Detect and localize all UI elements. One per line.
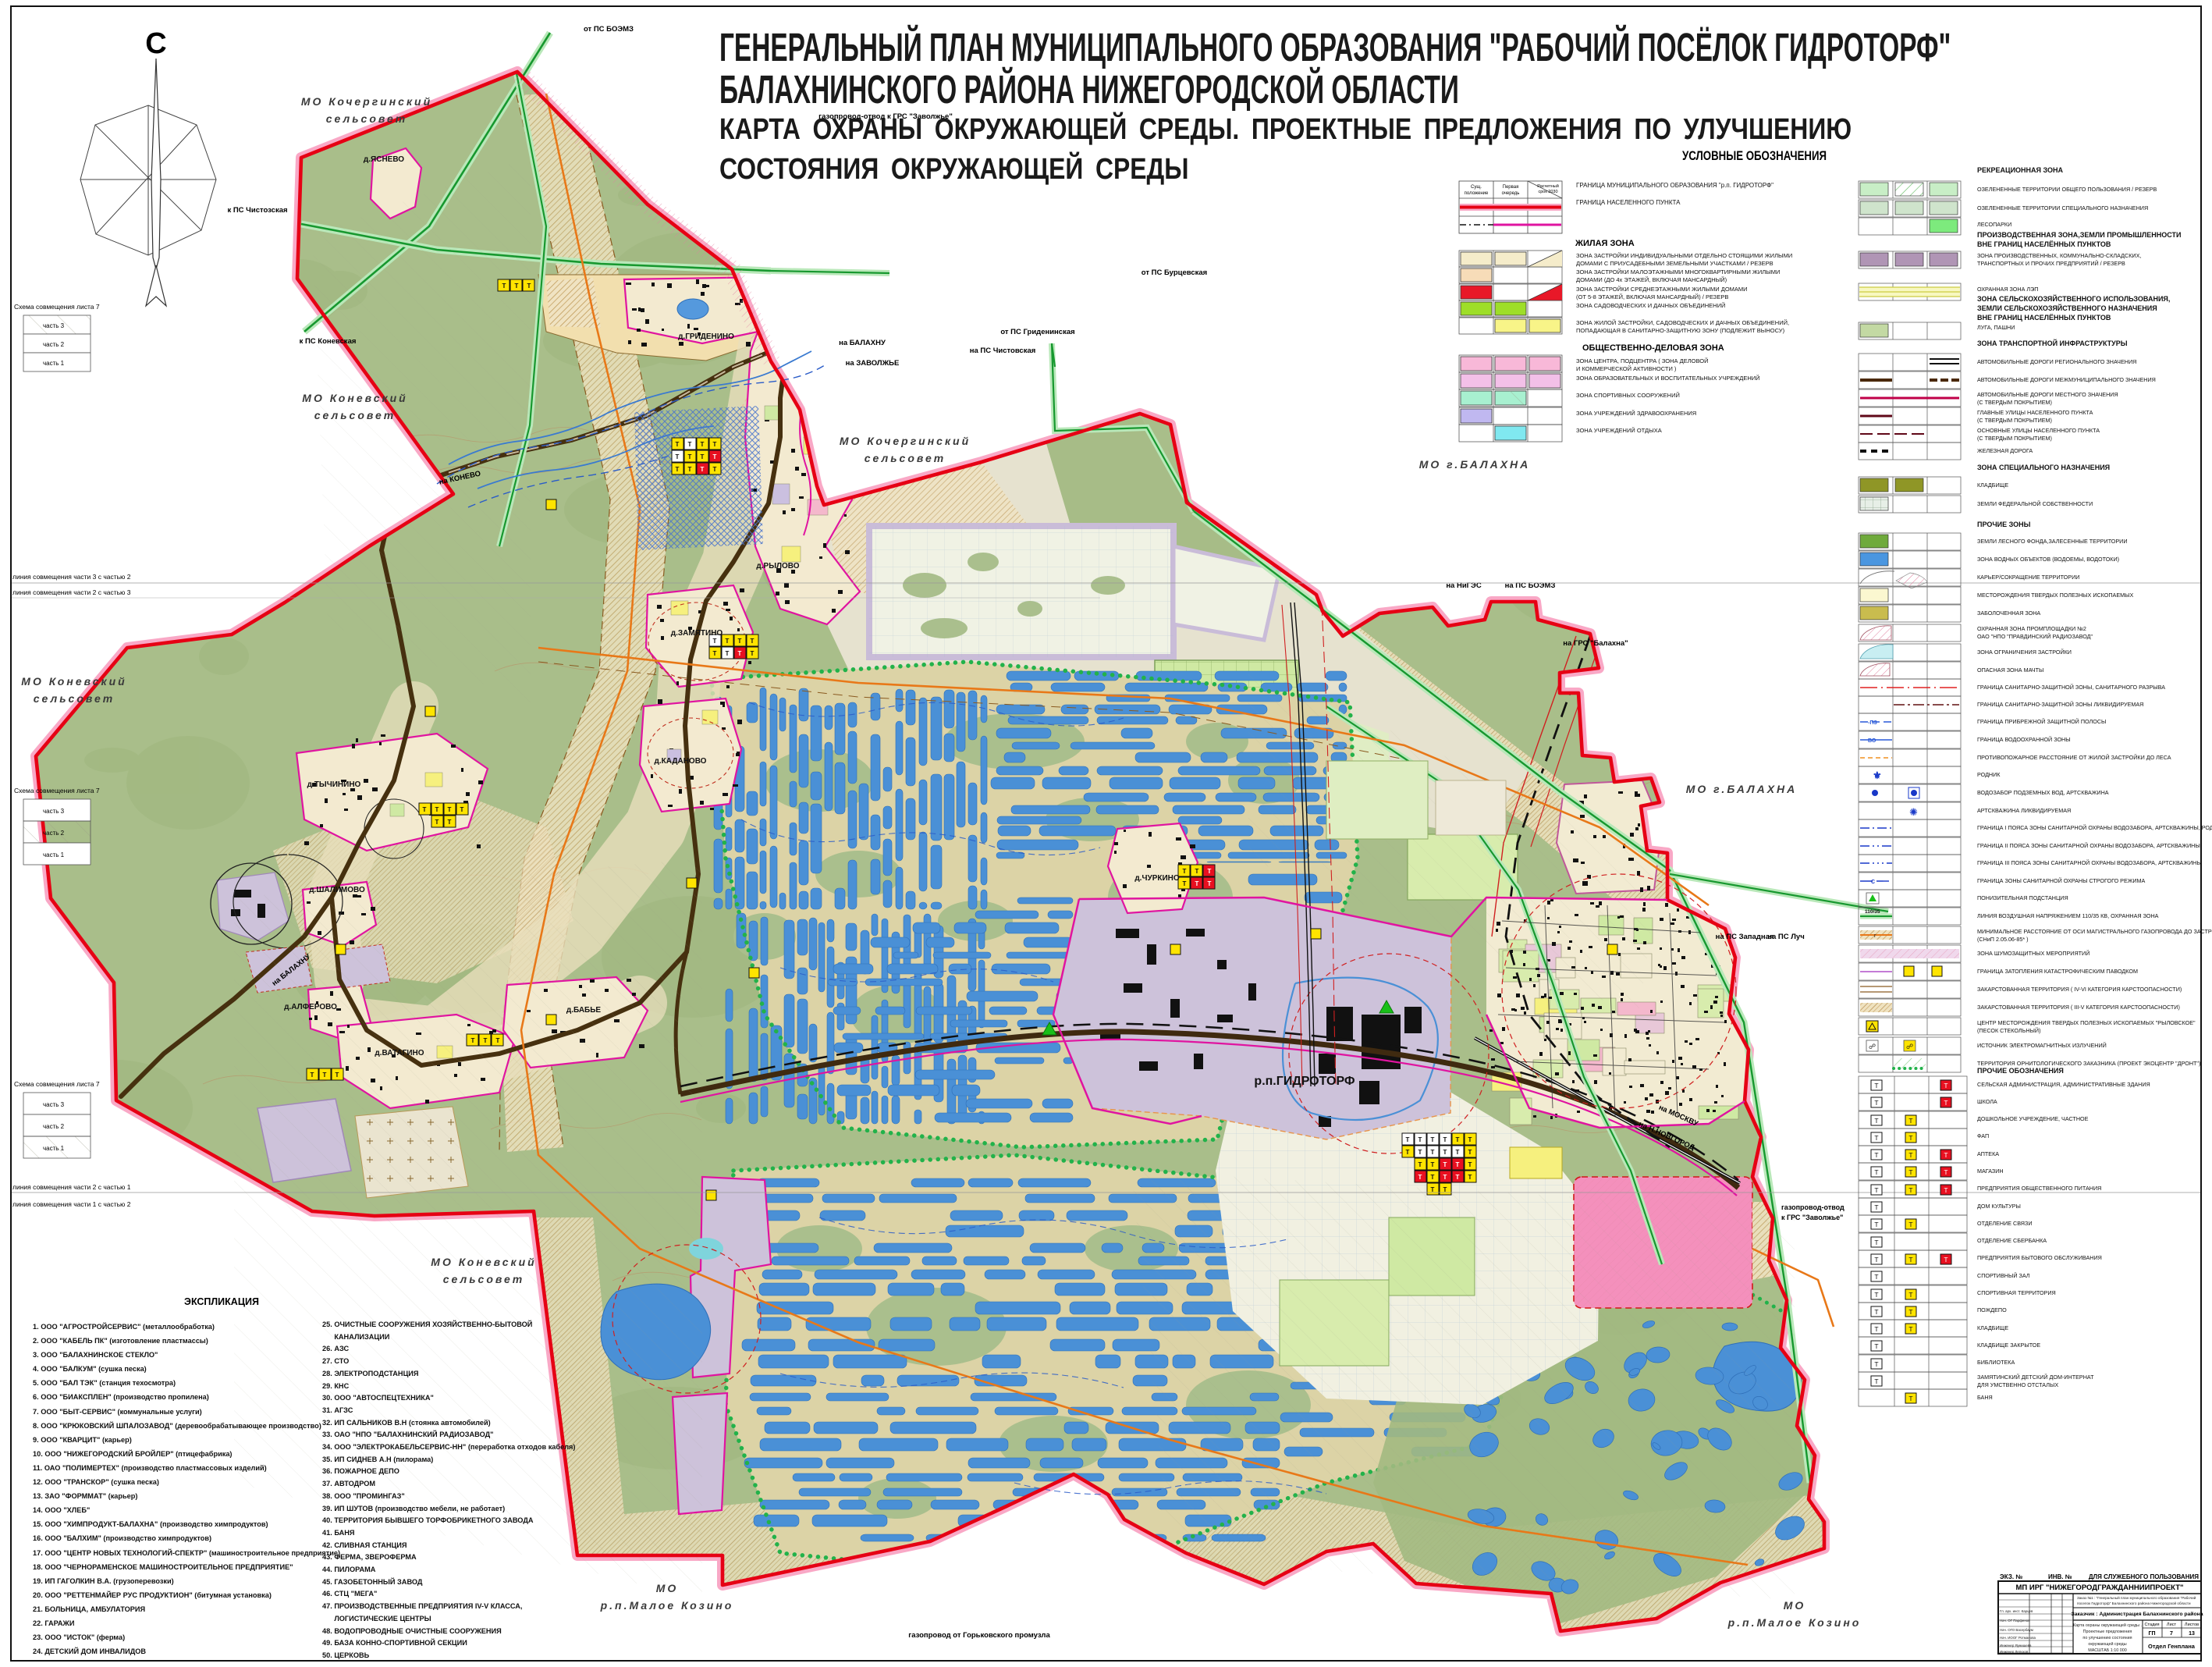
svg-text:Схема совмещения листа 7: Схема совмещения листа 7 [14, 787, 100, 794]
svg-text:T: T [701, 453, 705, 460]
svg-text:T: T [738, 638, 742, 645]
svg-text:ВОДОЗАБОР ПОДЗЕМНЫХ ВОД, АРТСК: ВОДОЗАБОР ПОДЗЕМНЫХ ВОД, АРТСКВАЖИНА [1977, 789, 2109, 796]
svg-text:T: T [676, 441, 680, 448]
svg-text:ДОМАМИ (ДО 4х ЭТАЖЕЙ, ВКЛЮЧАЯ: ДОМАМИ (ДО 4х ЭТАЖЕЙ, ВКЛЮЧАЯ МАНСАРДНЫЙ… [1576, 276, 1727, 283]
svg-text:РОДНИК: РОДНИК [1977, 771, 2001, 778]
svg-text:ЖИЛАЯ ЗОНА: ЖИЛАЯ ЗОНА [1575, 239, 1635, 248]
svg-text:T: T [1443, 1161, 1447, 1168]
svg-text:49. БАЗА КОННО-СПОРТИВНОЙ СЕКЦ: 49. БАЗА КОННО-СПОРТИВНОЙ СЕКЦИИ [322, 1638, 467, 1647]
svg-text:T: T [1874, 1377, 1878, 1385]
svg-text:ПРОИЗВОДСТВЕННАЯ ЗОНА,ЗЕМЛИ ПР: ПРОИЗВОДСТВЕННАЯ ЗОНА,ЗЕМЛИ ПРОМЫШЛЕННОС… [1977, 231, 2181, 239]
svg-text:поселок Гидроторф" Балахнинско: поселок Гидроторф" Балахнинского района … [2077, 1601, 2191, 1605]
svg-text:ПОПАДАЮЩАЯ В САНИТАРНО-ЗАЩИТНУ: ПОПАДАЮЩАЯ В САНИТАРНО-ЗАЩИТНУЮ ЗОНУ (ПО… [1576, 327, 1785, 334]
svg-text:T: T [1874, 1221, 1878, 1228]
svg-text:T: T [1908, 1151, 1912, 1159]
svg-text:часть 3: часть 3 [43, 808, 65, 815]
svg-text:на ГРС "Балахна": на ГРС "Балахна" [1563, 639, 1628, 648]
svg-text:21. БОЛЬНИЦА, АМБУЛАТОРИЯ: 21. БОЛЬНИЦА, АМБУЛАТОРИЯ [33, 1605, 145, 1613]
svg-text:T: T [1874, 1256, 1878, 1264]
svg-text:T: T [751, 650, 754, 657]
svg-text:T: T [496, 1037, 500, 1044]
svg-text:32. ИП САЛЬНИКОВ В.Н (стоянка: 32. ИП САЛЬНИКОВ В.Н (стоянка автомобиле… [322, 1419, 491, 1427]
svg-text:С: С [145, 27, 166, 60]
svg-text:27. СТО: 27. СТО [322, 1357, 349, 1365]
svg-text:✺: ✺ [1909, 806, 1918, 818]
svg-text:г: г [1874, 933, 1876, 939]
svg-text:ГРАНИЦА МУНИЦИПАЛЬНОГО ОБРАЗОВ: ГРАНИЦА МУНИЦИПАЛЬНОГО ОБРАЗОВАНИЯ "р.п.… [1576, 182, 1774, 189]
svg-text:Заказ №1 : "Генеральный план м: Заказ №1 : "Генеральный план муниципальн… [2077, 1595, 2196, 1600]
svg-text:И КОММЕРЧЕСКОЙ АКТИВНОСТИ ): И КОММЕРЧЕСКОЙ АКТИВНОСТИ ) [1576, 365, 1677, 372]
svg-text:T: T [1874, 1203, 1878, 1211]
svg-text:д.ЯСНЕВО: д.ЯСНЕВО [364, 155, 404, 164]
svg-text:РЕКРЕАЦИОННАЯ ЗОНА: РЕКРЕАЦИОННАЯ ЗОНА [1977, 166, 2064, 174]
svg-text:T: T [1874, 1342, 1878, 1350]
svg-text:С: С [1871, 880, 1875, 885]
svg-text:T: T [471, 1037, 475, 1044]
svg-text:ПРОЧИЕ ЗОНЫ: ПРОЧИЕ ЗОНЫ [1977, 521, 2031, 528]
svg-text:часть 2: часть 2 [43, 341, 65, 348]
svg-text:T: T [688, 466, 692, 473]
svg-text:д.КАДАНОВО: д.КАДАНОВО [655, 757, 707, 766]
svg-text:3. ООО "БАЛАХНИНСКОЕ СТЕКЛО": 3. ООО "БАЛАХНИНСКОЕ СТЕКЛО" [33, 1351, 158, 1359]
svg-text:T: T [1418, 1149, 1422, 1156]
svg-text:T: T [1468, 1174, 1472, 1181]
svg-text:сельсовет: сельсовет [865, 452, 946, 464]
svg-text:T: T [751, 638, 754, 645]
svg-text:ЗОНА ЖИЛОЙ ЗАСТРОЙКИ, САДОВОДЧ: ЗОНА ЖИЛОЙ ЗАСТРОЙКИ, САДОВОДЧЕСКИХ И ДА… [1576, 319, 1789, 326]
svg-text:6. ООО "БИАКСПЛЕН" (производст: 6. ООО "БИАКСПЛЕН" (производство пропиле… [33, 1393, 209, 1401]
svg-text:ГП: ГП [2149, 1631, 2156, 1637]
svg-text:T: T [1944, 1151, 1947, 1159]
svg-text:КАНАЛИЗАЦИИ: КАНАЛИЗАЦИИ [322, 1333, 389, 1341]
svg-text:T: T [1456, 1161, 1460, 1168]
svg-text:18. ООО "ЧЕРНОРАМЕНСКОЕ МАШИНО: 18. ООО "ЧЕРНОРАМЕНСКОЕ МАШИНОСТРОИТЕЛЬН… [33, 1563, 293, 1571]
svg-text:сельсовет: сельсовет [314, 409, 396, 421]
svg-text:26. АЗС: 26. АЗС [322, 1345, 349, 1352]
svg-text:15. ООО "ХИМПРОДУКТ-БАЛАХНА" (: 15. ООО "ХИМПРОДУКТ-БАЛАХНА" (производст… [33, 1520, 268, 1528]
svg-text:T: T [1431, 1149, 1435, 1156]
svg-text:39. ИП ШУТОВ (производство меб: 39. ИП ШУТОВ (производство мебели, не ра… [322, 1505, 505, 1512]
svg-text:ДОМАМИ С ПРИУСАДЕБНЫМИ ЗЕМЕЛЬН: ДОМАМИ С ПРИУСАДЕБНЫМИ ЗЕМЕЛЬНЫМИ УЧАСТК… [1576, 260, 1774, 267]
svg-text:12. ООО "ТРАНСКОР" (сушка песк: 12. ООО "ТРАНСКОР" (сушка песка) [33, 1478, 159, 1486]
svg-text:T: T [726, 638, 730, 645]
svg-text:КЛАДБИЩЕ ЗАКРЫТОЕ: КЛАДБИЩЕ ЗАКРЫТОЕ [1977, 1342, 2040, 1349]
svg-text:д.БАБЬЕ: д.БАБЬЕ [566, 1006, 602, 1015]
svg-text:22. ГАРАЖИ: 22. ГАРАЖИ [33, 1619, 74, 1627]
svg-text:МО г.БАЛАХНА: МО г.БАЛАХНА [1686, 783, 1798, 795]
svg-text:д.ШАЛИМОВО: д.ШАЛИМОВО [309, 886, 365, 894]
svg-text:40. ТЕРРИТОРИЯ БЫВШЕГО ТОРФОБР: 40. ТЕРРИТОРИЯ БЫВШЕГО ТОРФОБРИКЕТНОГО З… [322, 1516, 534, 1524]
svg-text:T: T [435, 806, 439, 813]
svg-text:часть 1: часть 1 [43, 851, 65, 858]
svg-text:41. БАНЯ: 41. БАНЯ [322, 1529, 354, 1537]
svg-text:ЭКЗ. №: ЭКЗ. № [2000, 1573, 2022, 1580]
svg-text:T: T [1874, 1325, 1878, 1333]
svg-text:очередь: очередь [1502, 191, 1520, 196]
svg-text:T: T [1908, 1325, 1912, 1333]
svg-text:ГРАНИЦА ПРИБРЕЖНОЙ ЗАЩИТНОЙ ПО: ГРАНИЦА ПРИБРЕЖНОЙ ЗАЩИТНОЙ ПОЛОСЫ [1977, 718, 2106, 725]
svg-text:⚜: ⚜ [1873, 770, 1882, 781]
svg-text:на БАЛАХНУ: на БАЛАХНУ [839, 339, 886, 347]
svg-text:МИНИМАЛЬНОЕ РАССТОЯНИЕ ОТ ОСИ: МИНИМАЛЬНОЕ РАССТОЯНИЕ ОТ ОСИ МАГИСТРАЛЬ… [1977, 928, 2212, 935]
svg-text:УСЛОВНЫЕ ОБОЗНАЧЕНИЯ: УСЛОВНЫЕ ОБОЗНАЧЕНИЯ [1682, 149, 1827, 164]
svg-text:Лист: Лист [2167, 1623, 2177, 1627]
svg-text:Нач. ОГО Васербаум: Нач. ОГО Васербаум [2000, 1628, 2033, 1632]
svg-text:(С ТВЕРДЫМ ПОКРЫТИЕМ): (С ТВЕРДЫМ ПОКРЫТИЕМ) [1977, 435, 2052, 442]
svg-text:линия совмещения части 2 с ча: линия совмещения части 2 с частью 3 [12, 588, 131, 596]
svg-text:T: T [1468, 1149, 1472, 1156]
svg-text:ВО: ВО [1868, 738, 1876, 744]
svg-text:Нач. ИООГ Ротманова: Нач. ИООГ Ротманова [2000, 1636, 2036, 1640]
svg-text:(ОТ 5-8 ЭТАЖЕЙ, ВКЛЮЧАЯ МАНСАР: (ОТ 5-8 ЭТАЖЕЙ, ВКЛЮЧАЯ МАНСАРДНЫЙ) / РЕ… [1576, 293, 1728, 300]
svg-text:МО Кочергинский: МО Кочергинский [301, 95, 432, 108]
svg-text:ЗОНА ЗАСТРОЙКИ МАЛОЭТАЖНЫМИ М: ЗОНА ЗАСТРОЙКИ МАЛОЭТАЖНЫМИ МНОГОКВАРТИР… [1576, 268, 1780, 275]
svg-text:(С ТВЕРДЫМ ПОКРЫТИЕМ): (С ТВЕРДЫМ ПОКРЫТИЕМ) [1977, 399, 2052, 406]
svg-text:17. ООО "ЦЕНТР НОВЫХ ТЕХНОЛОГИ: 17. ООО "ЦЕНТР НОВЫХ ТЕХНОЛОГИЙ-СПЕКТР" … [33, 1548, 340, 1557]
svg-text:сельсовет: сельсовет [326, 112, 407, 125]
svg-text:T: T [1195, 880, 1199, 887]
svg-text:МО Кочергинский: МО Кочергинский [840, 435, 971, 447]
svg-text:МО: МО [1784, 1599, 1806, 1612]
svg-text:Схема совмещения листа 7: Схема совмещения листа 7 [14, 1080, 100, 1088]
svg-text:ПОЖДЕПО: ПОЖДЕПО [1977, 1306, 2007, 1313]
svg-text:T: T [336, 1072, 339, 1079]
svg-text:ЗОНА СПОРТИВНЫХ СООРУЖЕНИЙ: ЗОНА СПОРТИВНЫХ СООРУЖЕНИЙ [1576, 392, 1680, 399]
svg-text:ЦЕНТР МЕСТОРОЖДЕНИЯ ТВЕРДЫХ ПО: ЦЕНТР МЕСТОРОЖДЕНИЯ ТВЕРДЫХ ПОЛЕЗНЫХ ИСК… [1977, 1019, 2196, 1026]
svg-text:20. ООО "РЕТТЕНМАЙЕР РУС ПРОДУ: 20. ООО "РЕТТЕНМАЙЕР РУС ПРОДУКТИОН" (би… [33, 1591, 272, 1599]
svg-text:T: T [1908, 1221, 1912, 1228]
svg-text:T: T [1456, 1174, 1460, 1181]
svg-text:ГРАНИЦА САНИТАРНО-ЗАЩИТНОЙ ЗОН: ГРАНИЦА САНИТАРНО-ЗАЩИТНОЙ ЗОНЫ ЛИКВИДИР… [1977, 701, 2143, 708]
svg-text:30. ООО "АВТОСПЕЦТЕХНИКА": 30. ООО "АВТОСПЕЦТЕХНИКА" [322, 1394, 434, 1402]
svg-text:T: T [460, 806, 464, 813]
svg-text:ЛЕСОПАРКИ: ЛЕСОПАРКИ [1977, 221, 2011, 228]
svg-text:Первая: Первая [1503, 185, 1519, 190]
svg-text:T: T [323, 1072, 327, 1079]
svg-text:ГРАНИЦА ВОДООХРАННОЙ ЗОНЫ: ГРАНИЦА ВОДООХРАННОЙ ЗОНЫ [1977, 736, 2071, 743]
svg-text:T: T [1183, 868, 1187, 875]
svg-text:часть 1: часть 1 [43, 360, 65, 367]
svg-text:часть 2: часть 2 [43, 830, 65, 837]
svg-text:ЗОНА ЦЕНТРА, ПОДЦЕНТРА ( ЗОНА: ЗОНА ЦЕНТРА, ПОДЦЕНТРА ( ЗОНА ДЕЛОВОЙ [1576, 357, 1708, 364]
svg-text:АВТОМОБИЛЬНЫЕ ДОРОГИ МЕСТНОГО: АВТОМОБИЛЬНЫЕ ДОРОГИ МЕСТНОГО ЗНАЧЕНИЯ [1977, 391, 2118, 398]
svg-text:Карта охраны окружающей сред: Карта охраны окружающей среды . [2073, 1623, 2142, 1628]
svg-text:положение: положение [1465, 191, 1489, 196]
svg-text:T: T [1908, 1291, 1912, 1299]
svg-text:T: T [1874, 1273, 1878, 1281]
svg-text:T: T [713, 638, 717, 645]
svg-text:T: T [676, 453, 680, 460]
svg-text:Гл. арх. инст. Карцев: Гл. арх. инст. Карцев [2000, 1609, 2033, 1613]
svg-text:2. ООО "КАБЕЛЬ ПК" (изготовлен: 2. ООО "КАБЕЛЬ ПК" (изготовление пластма… [33, 1337, 208, 1345]
svg-text:ВНЕ ГРАНИЦ НАСЕЛЁННЫХ ПУНКТОВ: ВНЕ ГРАНИЦ НАСЕЛЁННЫХ ПУНКТОВ [1977, 240, 2111, 248]
svg-text:7: 7 [2170, 1631, 2173, 1637]
svg-text:14. ООО "ХЛЕБ": 14. ООО "ХЛЕБ" [33, 1506, 90, 1514]
svg-text:от ПС БОЭМЗ: от ПС БОЭМЗ [584, 25, 634, 34]
svg-text:ЗАМЯТИНСКИЙ ДЕТСКИЙ ДОМ-ИНТЕРН: ЗАМЯТИНСКИЙ ДЕТСКИЙ ДОМ-ИНТЕРНАТ [1977, 1374, 2094, 1381]
svg-text:T: T [1874, 1239, 1878, 1246]
svg-text:ДОШКОЛЬНОЕ УЧРЕЖДЕНИЕ, ЧАСТНОЕ: ДОШКОЛЬНОЕ УЧРЕЖДЕНИЕ, ЧАСТНОЕ [1977, 1115, 2089, 1122]
svg-text:МП ИРГ "НИЖЕГОРОДГРАЖДАННИИПРО: МП ИРГ "НИЖЕГОРОДГРАЖДАННИИПРОЕКТ" [2015, 1583, 2183, 1592]
svg-text:ЭКСПЛИКАЦИЯ: ЭКСПЛИКАЦИЯ [184, 1296, 259, 1307]
svg-text:ЗОНА ТРАНСПОРТНОЙ ИНФРАСТРУКТУ: ЗОНА ТРАНСПОРТНОЙ ИНФРАСТРУКТУРЫ [1977, 339, 2128, 347]
svg-text:44. ПИЛОРАМА: 44. ПИЛОРАМА [322, 1566, 376, 1573]
svg-text:Стадия: Стадия [2144, 1623, 2159, 1627]
svg-text:T: T [1908, 1186, 1912, 1194]
svg-text:ГЕНЕРАЛЬНЫЙ ПЛАН МУНИЦИПАЛЬНОГ: ГЕНЕРАЛЬНЫЙ ПЛАН МУНИЦИПАЛЬНОГО ОБРАЗОВА… [719, 25, 1951, 70]
svg-text:ПРОТИВОПОЖАРНОЕ РАССТОЯНИЕ ОТ: ПРОТИВОПОЖАРНОЕ РАССТОЯНИЕ ОТ ЖИЛОЙ ЗАСТ… [1977, 754, 2171, 761]
svg-text:окружающей среды: окружающей среды [2088, 1641, 2126, 1647]
svg-text:на ПС Чистовская: на ПС Чистовская [970, 347, 1036, 355]
svg-text:T: T [311, 1072, 314, 1079]
svg-text:T: T [1874, 1291, 1878, 1299]
svg-text:ДОМ КУЛЬТУРЫ: ДОМ КУЛЬТУРЫ [1977, 1203, 2021, 1210]
svg-text:Инженер Лепухов: Инженер Лепухов [2000, 1650, 2029, 1654]
svg-text:ШКОЛА: ШКОЛА [1977, 1098, 1997, 1105]
svg-text:ОСНОВНЫЕ УЛИЦЫ НАСЕЛЕННОГО ПУН: ОСНОВНЫЕ УЛИЦЫ НАСЕЛЕННОГО ПУНКТА [1977, 427, 2100, 434]
svg-text:T: T [515, 283, 519, 290]
svg-text:T: T [1944, 1099, 1947, 1107]
svg-text:ЗЕМЛИ ЛЕСНОГО ФОНДА,ЗАЛЕСЕННЫ: ЗЕМЛИ ЛЕСНОГО ФОНДА,ЗАЛЕСЕННЫЕ ТЕРРИТОРИ… [1977, 538, 2128, 545]
svg-text:ЗОНА УЧРЕЖДЕНИЙ ОТДЫХА: ЗОНА УЧРЕЖДЕНИЙ ОТДЫХА [1576, 427, 1662, 434]
svg-text:д.АЛФЕРОВО: д.АЛФЕРОВО [284, 1003, 337, 1011]
svg-text:T: T [448, 819, 452, 826]
svg-text:T: T [1908, 1134, 1912, 1142]
svg-text:по улучшению состояния: по улучшению состояния [2082, 1636, 2132, 1640]
svg-text:часть 1: часть 1 [43, 1145, 65, 1152]
svg-text:47. ПРОИЗВОДСТВЕННЫЕ ПРЕДПРИЯТ: 47. ПРОИЗВОДСТВЕННЫЕ ПРЕДПРИЯТИЯ IV-V КЛ… [322, 1602, 522, 1610]
svg-text:45. ГАЗОБЕТОННЫЙ ЗАВОД: 45. ГАЗОБЕТОННЫЙ ЗАВОД [322, 1577, 423, 1586]
svg-text:13: 13 [2189, 1631, 2195, 1637]
svg-text:37. АВТОДРОМ: 37. АВТОДРОМ [322, 1480, 375, 1488]
svg-text:Сущ.: Сущ. [1471, 185, 1482, 190]
svg-text:КАРЬЕР/СОКРАЩЕНИЕ ТЕРРИТОРИИ: КАРЬЕР/СОКРАЩЕНИЕ ТЕРРИТОРИИ [1977, 574, 2079, 581]
svg-text:ОТДЕЛЕНИЕ СБЕРБАНКА: ОТДЕЛЕНИЕ СБЕРБАНКА [1977, 1237, 2047, 1244]
svg-text:ЗОНА СПЕЦИАЛЬНОГО НАЗНАЧЕНИЯ: ЗОНА СПЕЦИАЛЬНОГО НАЗНАЧЕНИЯ [1977, 464, 2110, 471]
svg-text:ВНЕ ГРАНИЦ НАСЕЛЁННЫХ ПУНКТОВ: ВНЕ ГРАНИЦ НАСЕЛЁННЫХ ПУНКТОВ [1977, 314, 2111, 322]
svg-text:T: T [1874, 1134, 1878, 1142]
svg-text:16. ООО "БАЛХИМ" (производство: 16. ООО "БАЛХИМ" (производство химпродук… [33, 1534, 211, 1542]
svg-text:ДЛЯ УМСТВЕННО ОТСТАЛЫХ: ДЛЯ УМСТВЕННО ОТСТАЛЫХ [1977, 1381, 2058, 1388]
svg-text:ЛУГА, ПАШНИ: ЛУГА, ПАШНИ [1977, 324, 2015, 331]
svg-text:МАСШТАБ 1:10 000: МАСШТАБ 1:10 000 [2088, 1648, 2127, 1653]
svg-text:T: T [1944, 1256, 1947, 1264]
svg-text:35. ИП СИДНЕВ А.Н (пилорама): 35. ИП СИДНЕВ А.Н (пилорама) [322, 1456, 433, 1463]
svg-text:T: T [1874, 1117, 1878, 1125]
svg-text:ГРАНИЦА ЗОНЫ САНИТАРНОЙ ОХРАНЫ: ГРАНИЦА ЗОНЫ САНИТАРНОЙ ОХРАНЫ СТРОГОГО … [1977, 877, 2146, 884]
svg-text:ЗОНА ОБРАЗОВАТЕЛЬНЫХ И ВОСПИТ: ЗОНА ОБРАЗОВАТЕЛЬНЫХ И ВОСПИТАТЕЛЬНЫХ УЧ… [1576, 375, 1760, 382]
svg-text:46. СТЦ "МЕГА": 46. СТЦ "МЕГА" [322, 1590, 377, 1598]
svg-text:д.ВАТАГИНО: д.ВАТАГИНО [375, 1049, 424, 1057]
svg-text:☍: ☍ [1869, 1043, 1876, 1050]
svg-text:от ПС Бурцевская: от ПС Бурцевская [1142, 268, 1207, 277]
svg-text:4. ООО "БАЛКУМ" (сушка песка): 4. ООО "БАЛКУМ" (сушка песка) [33, 1365, 147, 1373]
svg-text:ЗОНА САДОВОДЧЕСКИХ И ДАЧНЫХ ОБ: ЗОНА САДОВОДЧЕСКИХ И ДАЧНЫХ ОБЪЕДИНЕНИЙ [1576, 302, 1725, 309]
svg-text:T: T [1908, 1256, 1912, 1264]
svg-text:1. ООО "АГРОСТРОЙСЕРВИС" (мет: 1. ООО "АГРОСТРОЙСЕРВИС" (металлообработ… [33, 1322, 215, 1331]
svg-text:T: T [726, 650, 730, 657]
svg-text:ФАП: ФАП [1977, 1132, 1989, 1139]
svg-text:9. ООО "КВАРЦИТ" (карьер): 9. ООО "КВАРЦИТ" (карьер) [33, 1436, 132, 1444]
svg-text:ОТДЕЛЕНИЕ СВЯЗИ: ОТДЕЛЕНИЕ СВЯЗИ [1977, 1220, 2033, 1227]
svg-text:МО: МО [656, 1582, 679, 1594]
svg-text:T: T [1406, 1149, 1410, 1156]
svg-text:-ПЗ: -ПЗ [1868, 720, 1877, 726]
svg-text:ГРАНИЦА II ПОЯСА ЗОНЫ САНИТАРН: ГРАНИЦА II ПОЯСА ЗОНЫ САНИТАРНОЙ ОХРАНЫ … [1977, 842, 2200, 849]
svg-text:ЗЕМЛИ СЕЛЬСКОХОЗЯЙСТВЕННОГО НА: ЗЕМЛИ СЕЛЬСКОХОЗЯЙСТВЕННОГО НАЗНАЧЕНИЯ [1977, 304, 2157, 312]
svg-text:13. ЗАО "ФОРММАТ" (карьер): 13. ЗАО "ФОРММАТ" (карьер) [33, 1492, 137, 1500]
svg-text:T: T [713, 650, 717, 657]
svg-text:Схема совмещения листа 7: Схема совмещения листа 7 [14, 303, 100, 311]
svg-text:р.п.Малое Козино: р.п.Малое Козино [600, 1599, 734, 1612]
svg-text:БИБЛИОТЕКА: БИБЛИОТЕКА [1977, 1359, 2015, 1366]
svg-text:ЗОНА ОГРАНИЧЕНИЯ ЗАСТРОЙКИ: ЗОНА ОГРАНИЧЕНИЯ ЗАСТРОЙКИ [1977, 649, 2072, 656]
svg-text:T: T [1874, 1360, 1878, 1368]
svg-text:СЕЛЬСКАЯ АДМИНИСТРАЦИЯ, АДМИНИ: СЕЛЬСКАЯ АДМИНИСТРАЦИЯ, АДМИНИСТРАТИВНЫЕ… [1977, 1081, 2150, 1088]
svg-text:T: T [1874, 1151, 1878, 1159]
svg-text:T: T [1456, 1149, 1460, 1156]
svg-text:ПРЕДПРИЯТИЯ БЫТОВОГО ОБСЛУЖИВА: ПРЕДПРИЯТИЯ БЫТОВОГО ОБСЛУЖИВАНИЯ [1977, 1254, 2102, 1261]
svg-text:T: T [688, 453, 692, 460]
svg-text:T: T [1468, 1136, 1472, 1143]
svg-text:Расчетный: Расчетный [1537, 183, 1559, 189]
svg-text:р.п.Малое Козино: р.п.Малое Козино [1727, 1616, 1862, 1629]
svg-text:28. ЭЛЕКТРОПОДСТАНЦИЯ: 28. ЭЛЕКТРОПОДСТАНЦИЯ [322, 1370, 419, 1377]
svg-text:ТРАНСПОРТНЫХ И ПРОЧИХ ПРЕДПРИЯ: ТРАНСПОРТНЫХ И ПРОЧИХ ПРЕДПРИЯТИЙ / РЕЗЕ… [1977, 260, 2125, 267]
svg-text:АВТОМОБИЛЬНЫЕ ДОРОГИ МЕЖМУНИЦИ: АВТОМОБИЛЬНЫЕ ДОРОГИ МЕЖМУНИЦИПАЛЬНОГО З… [1977, 376, 2156, 383]
svg-text:T: T [435, 819, 439, 826]
svg-text:10. ООО "НИЖЕГОРОДСКИЙ БРОЙЛЕР: 10. ООО "НИЖЕГОРОДСКИЙ БРОЙЛЕР" (птицефа… [33, 1449, 233, 1458]
svg-text:ЛОГИСТИЧЕСКИЕ ЦЕНТРЫ: ЛОГИСТИЧЕСКИЕ ЦЕНТРЫ [322, 1615, 431, 1623]
svg-text:ЗОНА ЗАСТРОЙКИ СРЕДНЕЭТАЖНЫМИ: ЗОНА ЗАСТРОЙКИ СРЕДНЕЭТАЖНЫМИ ЖИЛЫМИ ДОМ… [1576, 286, 1748, 293]
svg-text:к ПС Коневская: к ПС Коневская [300, 337, 357, 346]
svg-text:36. ПОЖАРНОЕ ДЕПО: 36. ПОЖАРНОЕ ДЕПО [322, 1467, 399, 1475]
svg-text:38. ООО "ПРОМИНГАЗ": 38. ООО "ПРОМИНГАЗ" [322, 1492, 405, 1500]
svg-text:ПРОЧИЕ ОБОЗНАЧЕНИЯ: ПРОЧИЕ ОБОЗНАЧЕНИЯ [1977, 1067, 2064, 1075]
svg-text:T: T [713, 441, 717, 448]
svg-text:T: T [701, 441, 705, 448]
svg-text:T: T [701, 466, 705, 473]
svg-text:T: T [1944, 1186, 1947, 1194]
svg-text:часть 3: часть 3 [43, 1101, 65, 1108]
svg-text:БАЛАХНИНСКОГО РАЙОНА НИЖЕГОРОД: БАЛАХНИНСКОГО РАЙОНА НИЖЕГОРОДСКОЙ ОБЛАС… [719, 67, 1459, 112]
svg-text:д.РЫЛОВО: д.РЫЛОВО [756, 562, 799, 570]
svg-text:ОАО "НПО "ПРАВДИНСКИЙ РАДИОЗАВ: ОАО "НПО "ПРАВДИНСКИЙ РАДИОЗАВОД" [1977, 633, 2093, 640]
svg-text:АПТЕКА: АПТЕКА [1977, 1150, 1999, 1157]
svg-text:ЗАКАРСТОВАННАЯ ТЕРРИТОРИЯ ( I: ЗАКАРСТОВАННАЯ ТЕРРИТОРИЯ ( III-V КАТЕГО… [1977, 1004, 2180, 1011]
svg-text:ОЗЕЛЕНЕННЫЕ ТЕРРИТОРИИ СПЕЦИАЛ: ОЗЕЛЕНЕННЫЕ ТЕРРИТОРИИ СПЕЦИАЛЬНОГО НАЗН… [1977, 204, 2148, 211]
svg-text:T: T [1908, 1308, 1912, 1316]
svg-text:д.ГРИДЕНИНО: д.ГРИДЕНИНО [678, 332, 734, 341]
svg-text:24. ДЕТСКИЙ ДОМ ИНВАЛИДОВ: 24. ДЕТСКИЙ ДОМ ИНВАЛИДОВ [33, 1647, 146, 1655]
svg-text:48. ВОДОПРОВОДНЫЕ ОЧИСТНЫЕ СОО: 48. ВОДОПРОВОДНЫЕ ОЧИСТНЫЕ СООРУЖЕНИЯ [322, 1627, 502, 1635]
svg-text:ОБЩЕСТВЕННО-ДЕЛОВАЯ ЗОНА: ОБЩЕСТВЕННО-ДЕЛОВАЯ ЗОНА [1582, 343, 1724, 353]
svg-text:ГРАНИЦА I ПОЯСА ЗОНЫ САНИТАРНО: ГРАНИЦА I ПОЯСА ЗОНЫ САНИТАРНОЙ ОХРАНЫ В… [1977, 824, 2212, 831]
svg-text:11. ОАО "ПОЛИМЕРТЕХ" (производ: 11. ОАО "ПОЛИМЕРТЕХ" (производство пласт… [33, 1464, 267, 1472]
svg-text:29. КНС: 29. КНС [322, 1382, 350, 1390]
svg-text:МО Коневский: МО Коневский [302, 392, 407, 404]
svg-text:линия совмещения части 2 с ча: линия совмещения части 2 с частью 1 [12, 1183, 131, 1191]
svg-text:T: T [1908, 1117, 1912, 1125]
svg-text:срок 2030: срок 2030 [1538, 190, 1557, 194]
svg-text:линия совмещения части 3 с ча: линия совмещения части 3 с частью 2 [12, 573, 131, 581]
svg-text:(ПЕСОК СТЕКОЛЬНЫЙ): (ПЕСОК СТЕКОЛЬНЫЙ) [1977, 1027, 2040, 1034]
svg-text:T: T [1874, 1308, 1878, 1316]
svg-text:19. ИП ГАГОЛКИН В.А. (грузопер: 19. ИП ГАГОЛКИН В.А. (грузоперевозки) [33, 1577, 174, 1585]
svg-text:к ГРС "Заволжье": к ГРС "Заволжье" [1781, 1214, 1843, 1221]
svg-text:на ПС Луч: на ПС Луч [1767, 933, 1804, 941]
svg-text:Отдел Генплана: Отдел Генплана [2148, 1643, 2196, 1650]
svg-text:на ПС Западная: на ПС Западная [1716, 933, 1774, 941]
svg-text:T: T [1418, 1161, 1422, 1168]
svg-text:ОЗЕЛЕНЕННЫЕ ТЕРРИТОРИИ ОБЩЕГО: ОЗЕЛЕНЕННЫЕ ТЕРРИТОРИИ ОБЩЕГО ПОЛЬЗОВАНИ… [1977, 186, 2157, 193]
svg-text:к ПС Чистозская: к ПС Чистозская [227, 206, 287, 215]
svg-text:ЛИНИЯ ВОЗДУШНАЯ НАПРЯЖЕНИЕМ 11: ЛИНИЯ ВОЗДУШНАЯ НАПРЯЖЕНИЕМ 110/35 КВ, О… [1977, 912, 2159, 919]
svg-text:ТЕРРИТОРИЯ ОРНИТОЛОГИЧЕСКОГО З: ТЕРРИТОРИЯ ОРНИТОЛОГИЧЕСКОГО ЗАКАЗНИКА (… [1977, 1060, 2200, 1067]
svg-text:ГРАНИЦА САНИТАРНО-ЗАЩИТНОЙ ЗОН: ГРАНИЦА САНИТАРНО-ЗАЩИТНОЙ ЗОНЫ, САНИТАР… [1977, 684, 2165, 691]
svg-text:ЗЕМЛИ ФЕДЕРАЛЬНОЙ СОБСТВЕННОС: ЗЕМЛИ ФЕДЕРАЛЬНОЙ СОБСТВЕННОСТИ [1977, 500, 2093, 507]
svg-text:СПОРТИВНАЯ ТЕРРИТОРИЯ: СПОРТИВНАЯ ТЕРРИТОРИЯ [1977, 1289, 2056, 1296]
svg-text:КЛАДБИЩЕ: КЛАДБИЩЕ [1977, 1324, 2008, 1331]
svg-text:33. ОАО "НПО "БАЛАХНИНСКИЙ РАД: 33. ОАО "НПО "БАЛАХНИНСКИЙ РАДИОЗАВОД" [322, 1430, 494, 1438]
svg-text:43. ФЕРМА, ЗВЕРОФЕРМА: 43. ФЕРМА, ЗВЕРОФЕРМА [322, 1553, 417, 1561]
svg-text:T: T [1944, 1082, 1947, 1089]
svg-text:МО Коневский: МО Коневский [431, 1256, 536, 1268]
svg-text:ГРАНИЦА III ПОЯСА ЗОНЫ САНИТАР: ГРАНИЦА III ПОЯСА ЗОНЫ САНИТАРНОЙ ОХРАНЫ… [1977, 859, 2202, 866]
svg-text:T: T [1431, 1136, 1435, 1143]
svg-text:23. ООО "ИСТОК" (ферма): 23. ООО "ИСТОК" (ферма) [33, 1633, 125, 1641]
svg-text:МО Коневский: МО Коневский [21, 675, 126, 688]
svg-text:T: T [1443, 1136, 1447, 1143]
svg-text:КАРТА ОХРАНЫ ОКРУЖАЮЩЕЙ СРЕД: КАРТА ОХРАНЫ ОКРУЖАЮЩЕЙ СРЕДЫ. ПРОЕКТНЫЕ… [719, 112, 1852, 145]
svg-text:T: T [713, 466, 717, 473]
svg-text:от ПС Гриденинская: от ПС Гриденинская [1000, 328, 1074, 336]
svg-text:T: T [1908, 1168, 1912, 1176]
svg-text:T: T [1431, 1174, 1435, 1181]
svg-text:T: T [738, 650, 742, 657]
svg-text:сельсовет: сельсовет [34, 692, 115, 705]
svg-text:34. ООО "ЭЛЕКТРОКАБЕЛЬСЕРВИС-Н: 34. ООО "ЭЛЕКТРОКАБЕЛЬСЕРВИС-НН" (перера… [322, 1443, 575, 1451]
svg-text:ЗОНА СЕЛЬСКОХОЗЯЙСТВЕННОГО ИСП: ЗОНА СЕЛЬСКОХОЗЯЙСТВЕННОГО ИСПОЛЬЗОВАНИЯ… [1977, 294, 2170, 303]
svg-text:СОСТОЯНИЯ ОКРУЖАЮЩЕЙ СРЕДЫ: СОСТОЯНИЯ ОКРУЖАЮЩЕЙ СРЕДЫ [719, 151, 1189, 185]
svg-text:газопровод-отвод: газопровод-отвод [1781, 1203, 1845, 1211]
svg-text:8. ООО "КРЮКОВСКИЙ ШПАЛОЗАВОД": 8. ООО "КРЮКОВСКИЙ ШПАЛОЗАВОД" (деревооб… [33, 1421, 321, 1430]
svg-text:ГРАНИЦА ЗАТОПЛЕНИЯ КАТАСТРОФИЧ: ГРАНИЦА ЗАТОПЛЕНИЯ КАТАСТРОФИЧЕСКИМ ПАВО… [1977, 968, 2138, 975]
svg-text:ОХРАННАЯ ЗОНА ЛЭП: ОХРАННАЯ ЗОНА ЛЭП [1977, 286, 2038, 293]
svg-text:T: T [1195, 868, 1199, 875]
svg-text:T: T [1406, 1136, 1410, 1143]
svg-text:T: T [1456, 1136, 1460, 1143]
svg-text:T: T [1418, 1174, 1422, 1181]
svg-text:МО г.БАЛАХНА: МО г.БАЛАХНА [1419, 458, 1531, 471]
svg-text:T: T [676, 466, 680, 473]
svg-text:р.п.ГИДРОТОРФ: р.п.ГИДРОТОРФ [1254, 1075, 1355, 1088]
svg-text:МЕСТОРОЖДЕНИЯ ТВЕРДЫХ ПОЛЕЗНЫХ: МЕСТОРОЖДЕНИЯ ТВЕРДЫХ ПОЛЕЗНЫХ ИСКОПАЕМЫ… [1977, 592, 2133, 599]
svg-text:СПОРТИВНЫЙ ЗАЛ: СПОРТИВНЫЙ ЗАЛ [1977, 1272, 2030, 1279]
svg-text:АВТОМОБИЛЬНЫЕ ДОРОГИ РЕГИОНАЛЬ: АВТОМОБИЛЬНЫЕ ДОРОГИ РЕГИОНАЛЬНОГО ЗНАЧЕ… [1977, 358, 2136, 365]
svg-text:31. АГЗС: 31. АГЗС [322, 1406, 353, 1414]
svg-text:T: T [527, 283, 531, 290]
svg-text:ЗОНА УЧРЕЖДЕНИЙ ЗДРАВООХРАНЕНИ: ЗОНА УЧРЕЖДЕНИЙ ЗДРАВООХРАНЕНИЯ [1576, 410, 1696, 417]
svg-text:МАГАЗИН: МАГАЗИН [1977, 1168, 2004, 1175]
svg-text:T: T [423, 806, 427, 813]
svg-text:ЗОНА ВОДНЫХ ОБЪЕКТОВ (ВОДОЕМ: ЗОНА ВОДНЫХ ОБЪЕКТОВ (ВОДОЕМЫ, ВОДОТОКИ) [1977, 556, 2119, 563]
svg-text:50. ЦЕРКОВЬ: 50. ЦЕРКОВЬ [322, 1651, 370, 1659]
svg-text:Инженер Яунишева: Инженер Яунишева [2000, 1644, 2032, 1647]
svg-text:5. ООО "БАЛ ТЭК" (станция техо: 5. ООО "БАЛ ТЭК" (станция техосмотра) [33, 1379, 176, 1387]
svg-text:д.ТЫЧИНИНО: д.ТЫЧИНИНО [307, 780, 361, 789]
svg-text:7. ООО "БЫТ-СЕРВИС" (коммуналь: 7. ООО "БЫТ-СЕРВИС" (коммунальные услуги… [33, 1408, 202, 1416]
